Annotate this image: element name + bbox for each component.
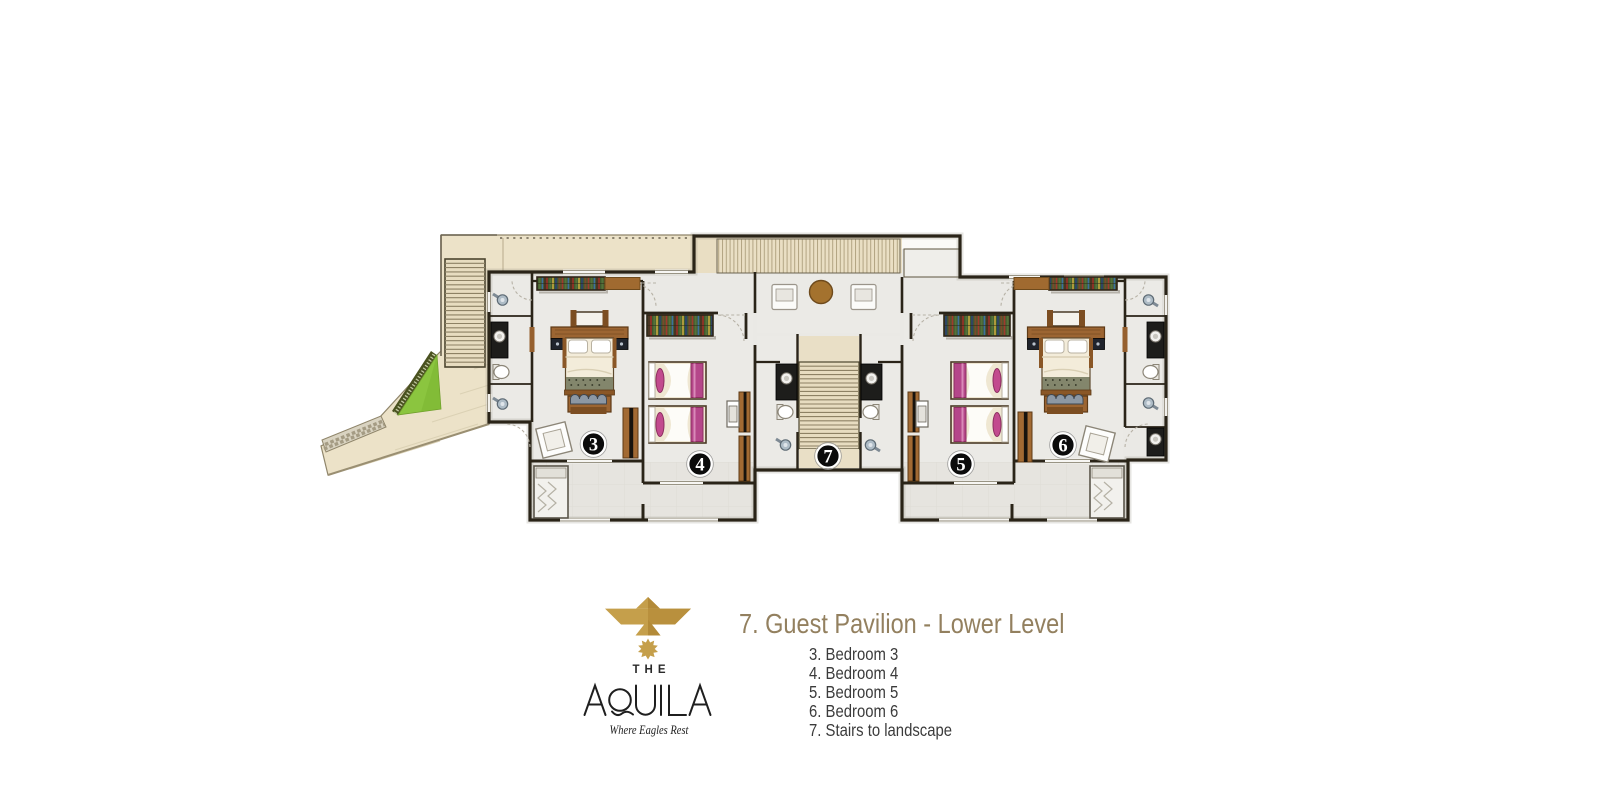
svg-text:3: 3 — [589, 436, 598, 456]
svg-text:7: 7 — [823, 448, 832, 468]
svg-text:6: 6 — [1058, 437, 1067, 457]
svg-text:4: 4 — [695, 456, 704, 476]
svg-text:5: 5 — [956, 456, 965, 476]
